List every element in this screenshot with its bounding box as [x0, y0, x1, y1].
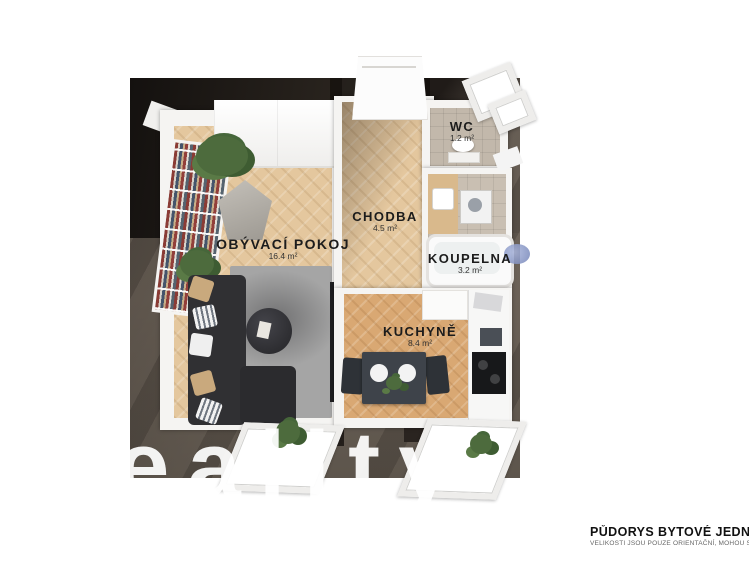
caption-disclaimer: VELIKOSTI JSOU POUZE ORIENTAČNÍ, MOHOU S…: [590, 540, 749, 548]
label-hallway: CHODBA 4.5 m²: [335, 210, 435, 233]
room-area: 16.4 m²: [208, 251, 358, 261]
table-plant: [386, 376, 402, 390]
room-name: OBÝVACÍ POKOJ: [208, 238, 358, 251]
entrance-door-seam: [362, 66, 416, 68]
bathroom-sink: [432, 188, 454, 210]
label-bathroom: KOUPELNA 3.2 m²: [420, 252, 520, 275]
caption-title: PŮDORYS BYTOVÉ JEDNO: [590, 525, 749, 540]
label-kitchen: KUCHYNĚ 8.4 m²: [370, 325, 470, 348]
plant-on-shelf: [196, 136, 248, 176]
room-kitchen: [334, 288, 512, 428]
cooktop: [472, 352, 506, 394]
toilet-tank: [448, 152, 480, 163]
room-name: WC: [432, 120, 492, 133]
plate: [370, 364, 388, 382]
burner: [490, 374, 500, 384]
caption-block: PŮDORYS BYTOVÉ JEDNO VELIKOSTI JSOU POUZ…: [590, 525, 749, 555]
room-area: 4.5 m²: [335, 223, 435, 233]
label-living-room: OBÝVACÍ POKOJ 16.4 m²: [208, 238, 358, 261]
burner: [478, 360, 488, 370]
coffee-machine: [480, 328, 502, 346]
floor-plan-render: eality OBÝVACÍ POKOJ 16.4 m² CHODBA 4.5 …: [0, 0, 749, 562]
washing-machine-door: [468, 198, 482, 212]
room-name: KOUPELNA: [420, 252, 520, 265]
pillow: [189, 333, 214, 358]
room-name: KUCHYNĚ: [370, 325, 470, 338]
kitchen-cabinet: [422, 290, 468, 320]
room-living: [160, 110, 342, 430]
label-wc: WC 1.2 m²: [432, 120, 492, 143]
room-name: CHODBA: [335, 210, 435, 223]
room-hallway: [334, 96, 434, 292]
pillow: [192, 304, 218, 330]
room-area: 3.2 m²: [420, 265, 520, 275]
room-area: 8.4 m²: [370, 338, 470, 348]
room-area: 1.2 m²: [432, 133, 492, 143]
dining-chair-right: [424, 355, 450, 395]
hallway-shadow: [342, 102, 426, 292]
plant-window-right: [470, 434, 492, 454]
agency-watermark: eality: [116, 418, 469, 514]
